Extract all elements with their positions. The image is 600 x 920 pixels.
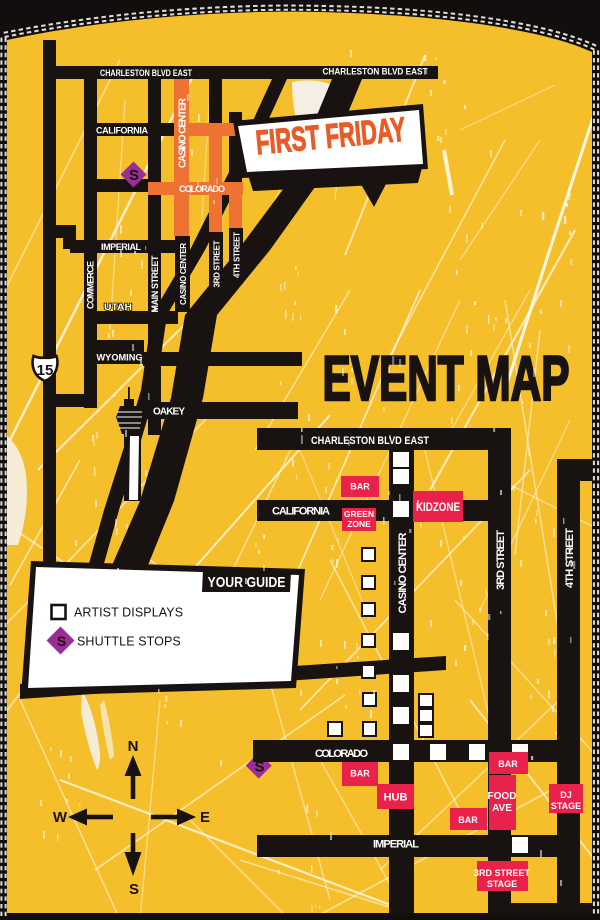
svg-text:COLORADO: COLORADO: [179, 184, 225, 194]
svg-text:GREEN: GREEN: [344, 509, 374, 519]
svg-text:S: S: [129, 167, 139, 184]
svg-text:MAIN STREET: MAIN STREET: [150, 255, 160, 313]
svg-text:ZONE: ZONE: [347, 519, 371, 529]
svg-text:4TH STREET: 4TH STREET: [564, 528, 576, 588]
svg-text:S: S: [129, 881, 139, 898]
svg-text:W: W: [53, 809, 68, 826]
svg-text:BAR: BAR: [350, 482, 370, 492]
svg-text:BAR: BAR: [458, 815, 478, 825]
svg-text:3RD STREET: 3RD STREET: [213, 240, 222, 287]
svg-text:BAR: BAR: [498, 759, 518, 769]
svg-text:STAGE: STAGE: [487, 879, 517, 889]
svg-text:S: S: [57, 633, 66, 649]
svg-text:4TH STREET: 4TH STREET: [233, 232, 242, 278]
svg-text:WYOMING: WYOMING: [97, 353, 143, 363]
svg-text:KIDZONE: KIDZONE: [416, 500, 460, 514]
svg-text:3RD STREET: 3RD STREET: [495, 530, 507, 590]
svg-text:BAR: BAR: [350, 769, 370, 779]
svg-text:ARTIST DISPLAYS: ARTIST DISPLAYS: [74, 606, 183, 620]
svg-text:CALIFORNIA: CALIFORNIA: [272, 506, 330, 518]
svg-text:SHUTTLE STOPS: SHUTTLE STOPS: [77, 635, 181, 649]
svg-text:CALIFORNIA: CALIFORNIA: [96, 125, 149, 135]
svg-text:CHARLESTON BLVD EAST: CHARLESTON BLVD EAST: [311, 435, 429, 447]
svg-text:CHARLESTON BLVD EAST: CHARLESTON BLVD EAST: [323, 67, 428, 77]
svg-text:HUB: HUB: [384, 792, 408, 804]
svg-text:CHARLESTON BLVD EAST: CHARLESTON BLVD EAST: [100, 68, 192, 78]
svg-text:E: E: [200, 809, 210, 826]
svg-text:COLORADO: COLORADO: [315, 748, 368, 760]
svg-text:FOOD: FOOD: [488, 791, 517, 802]
svg-text:CASINO CENTER: CASINO CENTER: [178, 97, 189, 168]
svg-text:CASINO CENTER: CASINO CENTER: [397, 532, 409, 613]
svg-text:IMPERIAL: IMPERIAL: [373, 839, 419, 851]
svg-text:COMMERCE: COMMERCE: [86, 261, 96, 309]
svg-text:UTAH: UTAH: [104, 302, 132, 312]
svg-text:EVENT MAP: EVENT MAP: [323, 344, 570, 414]
svg-text:N: N: [128, 738, 139, 755]
svg-text:3RD STREET: 3RD STREET: [474, 868, 531, 878]
svg-text:STAGE: STAGE: [551, 801, 581, 811]
svg-text:15: 15: [37, 362, 54, 379]
svg-text:OAKEY: OAKEY: [153, 407, 185, 418]
svg-text:DJ: DJ: [560, 790, 572, 800]
svg-text:CASINO CENTER: CASINO CENTER: [179, 243, 188, 305]
svg-text:AVE: AVE: [492, 803, 512, 814]
